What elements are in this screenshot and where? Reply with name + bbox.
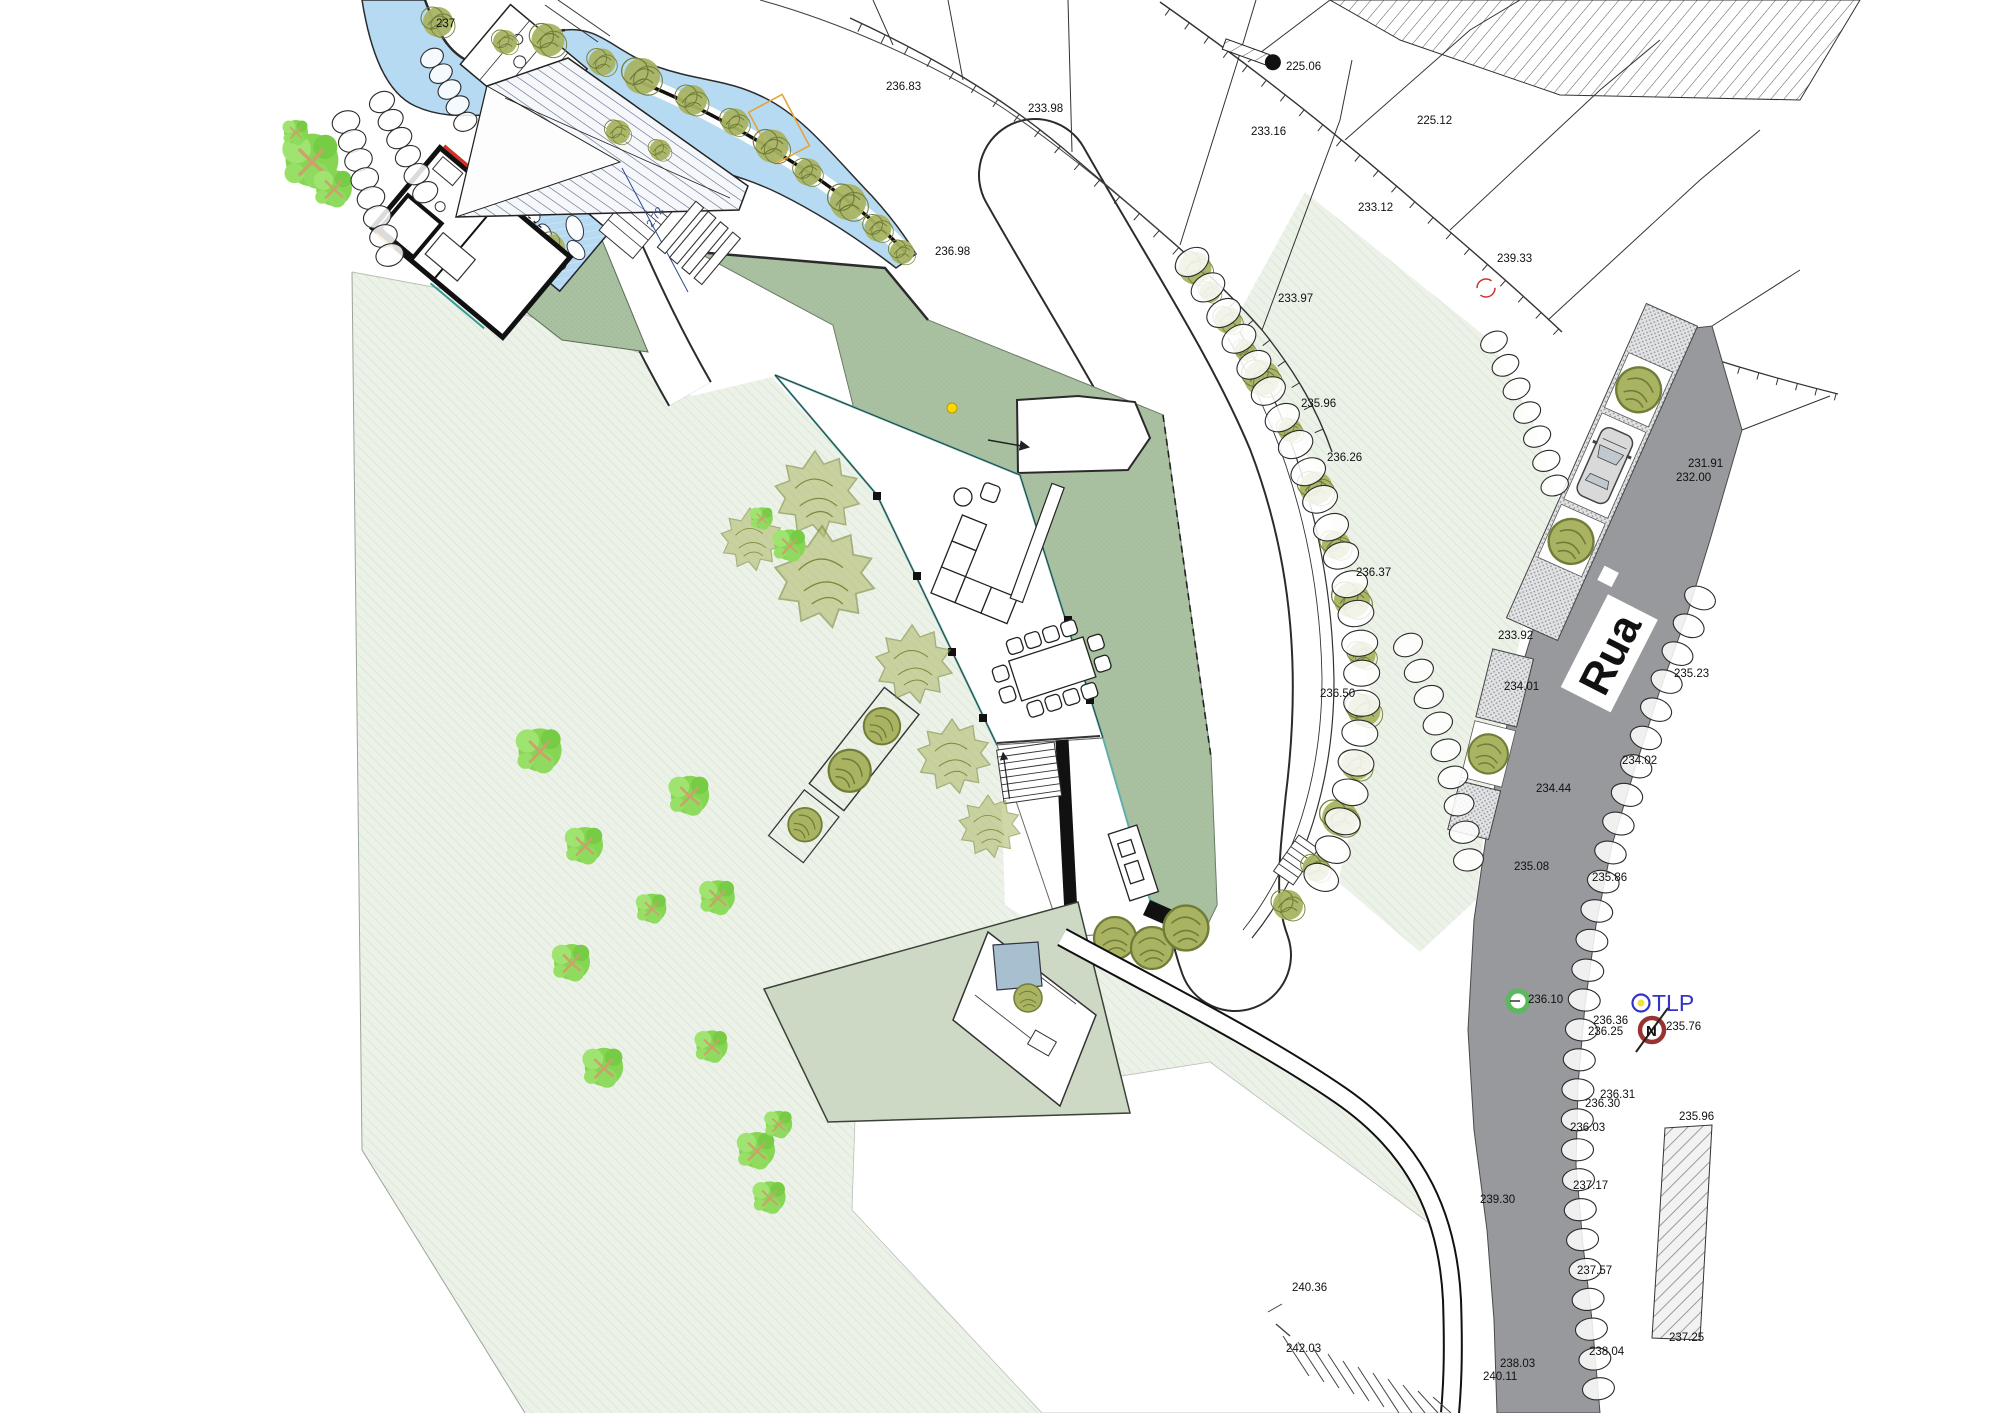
boundary-tick <box>1553 329 1559 335</box>
boundary-tick <box>1796 383 1798 390</box>
slope-hatch-area <box>1652 1125 1712 1340</box>
north-label: N <box>1646 1023 1657 1040</box>
elevation-label: 237.57 <box>1577 1265 1612 1277</box>
boundary-tick <box>858 24 862 32</box>
lower-pool <box>993 942 1042 990</box>
boundary-tick <box>1815 389 1817 396</box>
elevation-label: 240.36 <box>1292 1282 1327 1294</box>
elevation-label: 237.17 <box>1573 1180 1608 1192</box>
elevation-label: 239.33 <box>1497 253 1532 265</box>
site-plan-drawing: TLP N Rua 237236.83233.98225.06225.12233… <box>0 0 2000 1413</box>
boundary-tick <box>1757 373 1759 380</box>
elevation-label: 235.23 <box>1674 668 1709 680</box>
elevation-label: 234.01 <box>1504 681 1539 693</box>
elevation-label: 242.03 <box>1286 1343 1321 1355</box>
boundary-tick <box>1518 296 1523 302</box>
boundary-tick <box>1014 114 1019 121</box>
utility-pole-tlp: TLP <box>1633 990 1695 1016</box>
lounge-chair <box>954 488 972 506</box>
boundary-tick <box>881 35 885 43</box>
site-plan: TLP N Rua 237236.83233.98225.06225.12233… <box>0 0 2000 1413</box>
neighbour-roof-hatch <box>1330 0 1860 100</box>
elevation-label: 239.30 <box>1480 1194 1515 1206</box>
boundary-tick <box>1428 217 1433 223</box>
boundary-tick <box>1204 37 1209 43</box>
elevation-label: 233.97 <box>1278 293 1313 305</box>
boundary-tick <box>1482 264 1487 270</box>
elevation-label: 225.12 <box>1417 115 1452 127</box>
boundary-tick <box>1500 280 1505 286</box>
boundary-tick <box>1165 9 1170 16</box>
elevation-label: 235.08 <box>1514 861 1549 873</box>
boundary-tick <box>904 47 908 55</box>
elevation-label: 240.11 <box>1483 1371 1517 1383</box>
boundary-tick <box>1173 248 1179 255</box>
elevation-label: 235.96 <box>1679 1111 1714 1123</box>
boundary-tick <box>1299 110 1304 116</box>
boundary-tick <box>1464 249 1469 255</box>
elevation-label: 225.06 <box>1286 61 1321 73</box>
boundary-tick <box>1446 233 1451 239</box>
elevation-label: 236.83 <box>886 81 921 93</box>
elevation-label: 236.03 <box>1570 1122 1605 1134</box>
elevation-label: 233.92 <box>1498 630 1533 642</box>
boundary-tick <box>1223 51 1228 57</box>
boundary-tick <box>1185 23 1190 29</box>
bush-outline <box>1343 660 1380 687</box>
elevation-label: 236.37 <box>1356 567 1391 579</box>
elevation-label: 236.25 <box>1588 1026 1623 1038</box>
elevation-label: 235.76 <box>1666 1021 1701 1033</box>
boundary-tick <box>1355 155 1360 161</box>
elevation-label: 234.02 <box>1622 755 1657 767</box>
elevation-label: 238.04 <box>1589 1346 1625 1358</box>
elevation-label: 238.03 <box>1500 1358 1535 1370</box>
elevation-label: 232.00 <box>1676 472 1711 484</box>
boundary-tick <box>993 99 998 106</box>
boundary-tick <box>1261 80 1266 86</box>
elevation-label: 235.86 <box>1592 872 1627 884</box>
elevation-label: 236.50 <box>1320 688 1355 700</box>
boundary-tick <box>1391 186 1396 192</box>
boundary-tick <box>1410 202 1415 208</box>
boundary-tick <box>1242 66 1247 72</box>
red-survey-circle <box>1477 279 1495 297</box>
boundary-tick <box>1153 230 1159 237</box>
elevation-label: 236.98 <box>935 246 970 258</box>
boundary-tick <box>1834 394 1836 401</box>
elevation-label: 231.91 <box>1688 458 1723 470</box>
elevation-label: 236.26 <box>1327 452 1362 464</box>
boundary-tick <box>1134 213 1140 220</box>
boundary-tick <box>1318 125 1323 131</box>
elevation-label: 233.98 <box>1028 103 1063 115</box>
elevation-label: 236.10 <box>1528 994 1563 1006</box>
stairs-main <box>997 742 1062 804</box>
survey-point-yellow <box>947 403 957 413</box>
elevation-label: 234.44 <box>1536 783 1572 795</box>
boundary-tick <box>1776 378 1778 385</box>
elevation-label: 236.30 <box>1585 1098 1620 1110</box>
elevation-label: 233.16 <box>1251 126 1286 138</box>
boundary-tick <box>1373 171 1378 177</box>
elevation-label: 237 <box>436 18 455 30</box>
boundary-tick <box>1536 313 1541 319</box>
elevation-label: 235.96 <box>1301 398 1336 410</box>
boundary-tick <box>1336 140 1341 146</box>
boundary-tick <box>1738 367 1740 374</box>
elevation-label: 233.12 <box>1358 202 1393 214</box>
bush-outline <box>1561 1138 1593 1161</box>
elevation-label: 237.25 <box>1669 1332 1704 1344</box>
boundary-tick <box>927 59 931 67</box>
manhole <box>1508 991 1528 1011</box>
tlp-label: TLP <box>1652 990 1694 1016</box>
boundary-tick <box>1280 95 1285 101</box>
